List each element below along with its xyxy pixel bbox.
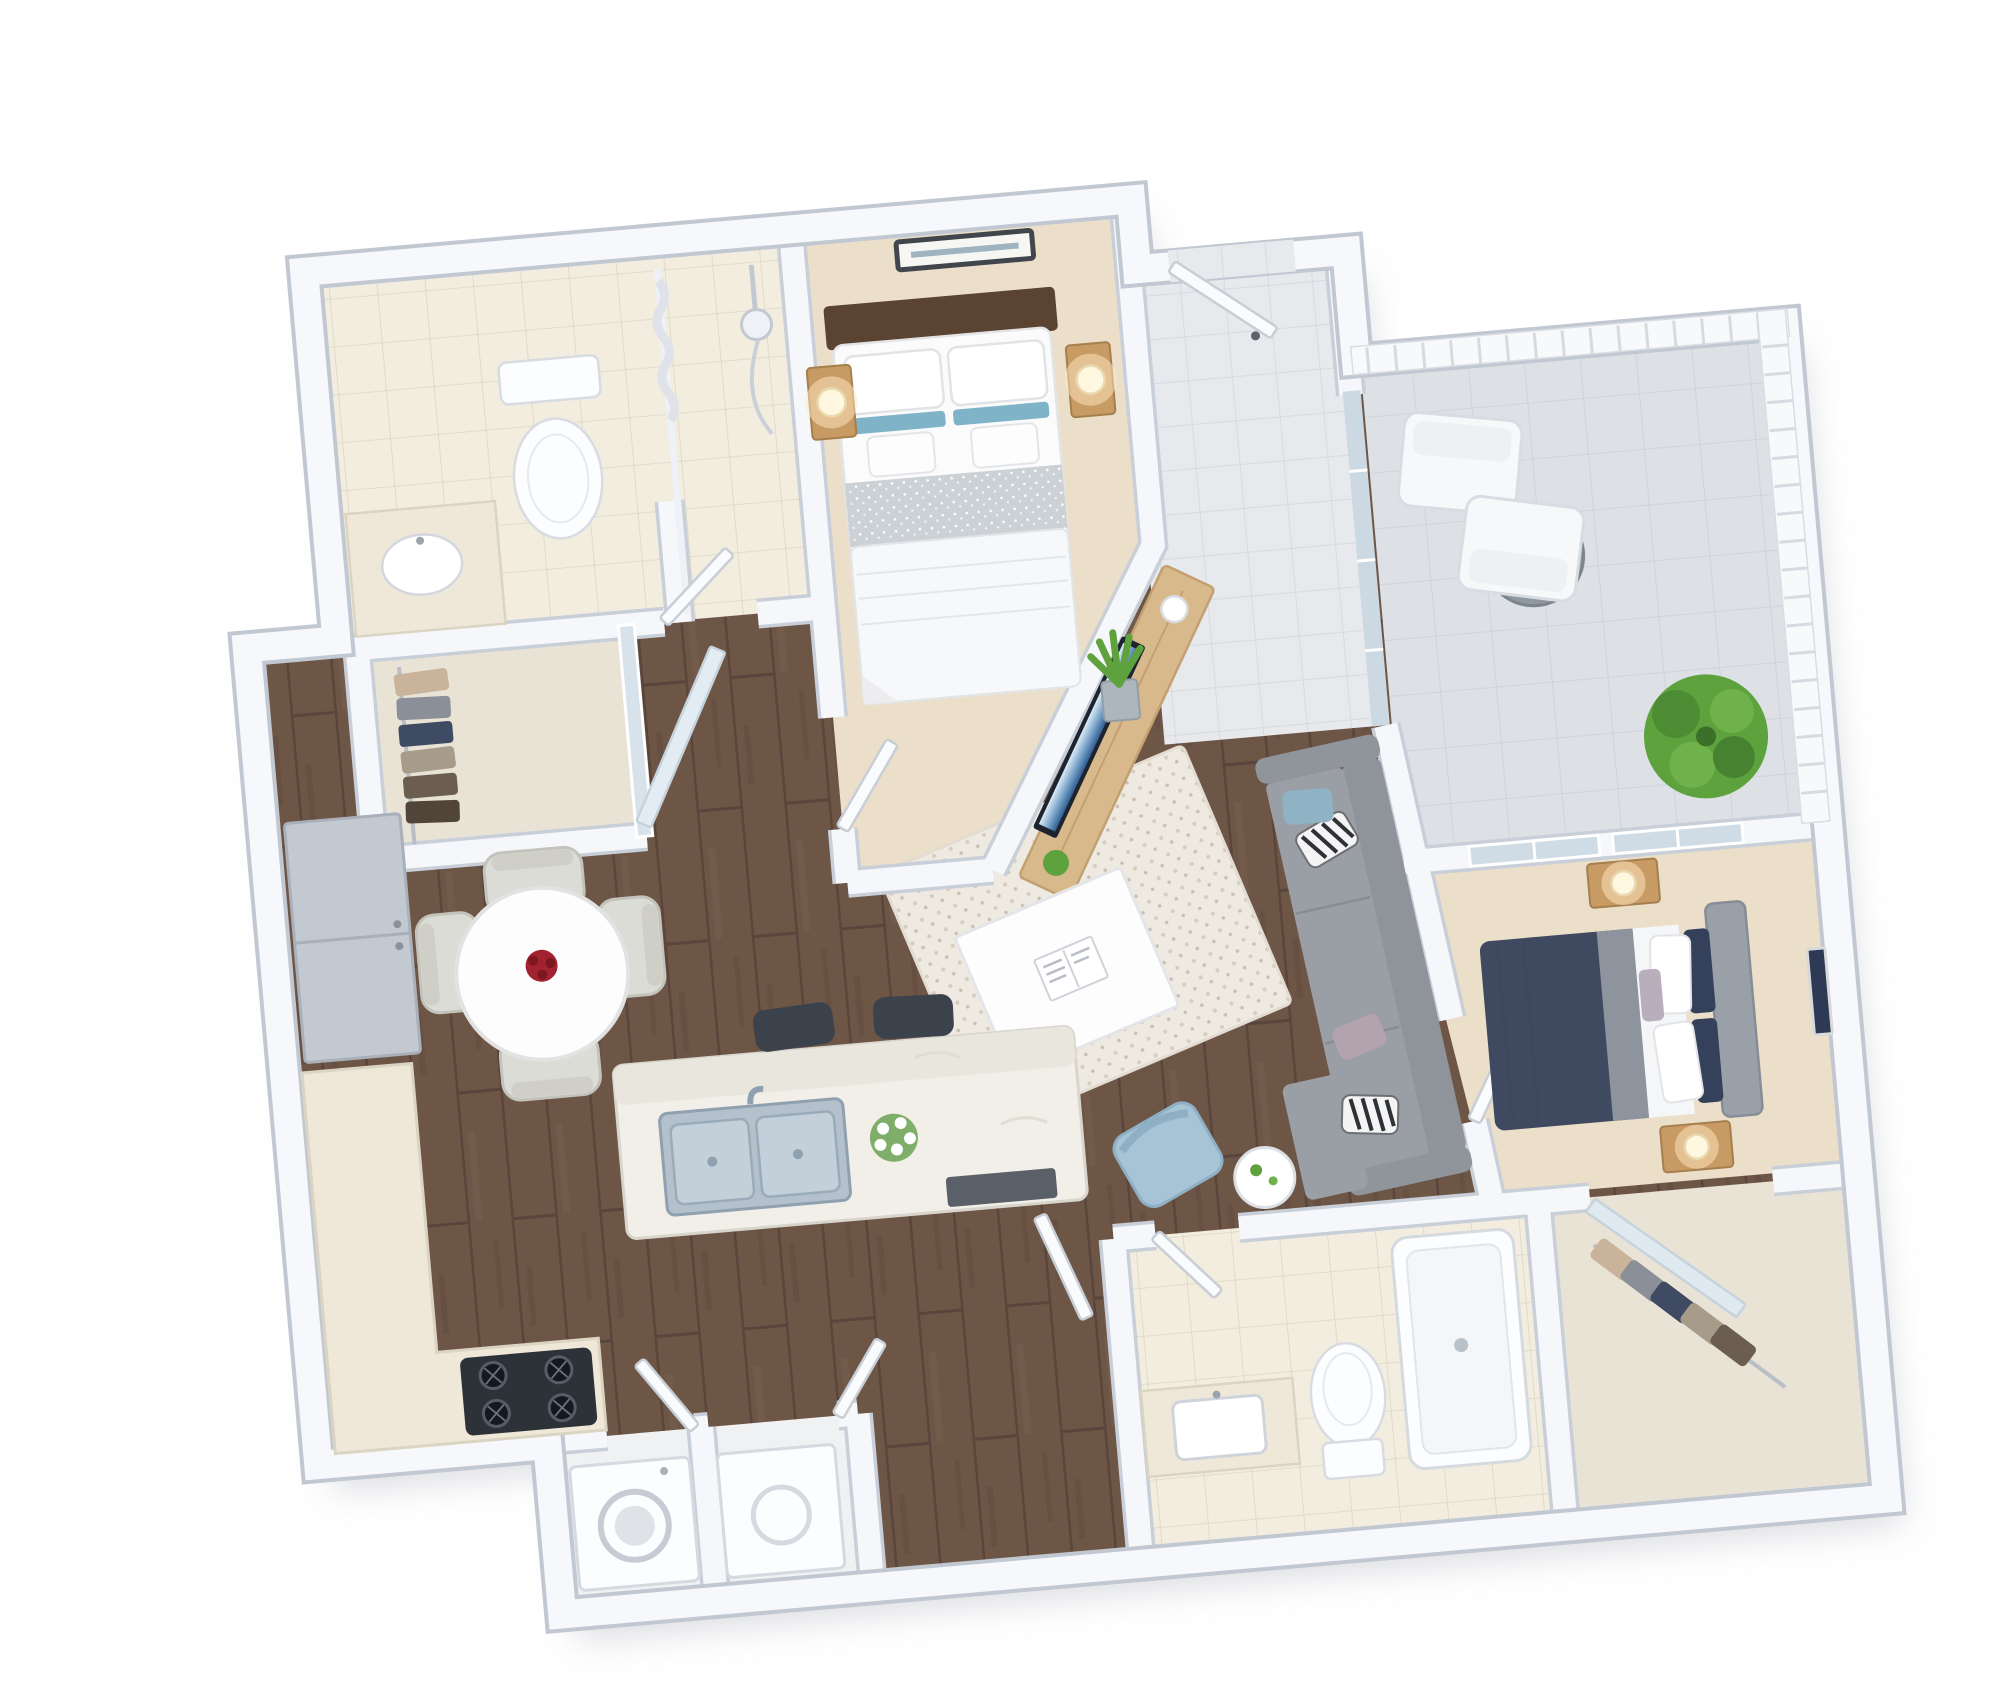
shower-head-icon (740, 308, 773, 341)
dryer (717, 1444, 845, 1578)
gas-cooktop (459, 1347, 597, 1436)
patterned-pillow (1638, 968, 1664, 1022)
table-lamp (1075, 365, 1105, 395)
apartment-plan (215, 143, 1892, 1634)
washer (569, 1457, 699, 1591)
bathroom-vanity (345, 501, 505, 637)
bathtub (1391, 1228, 1533, 1470)
blue-pillow (1282, 788, 1335, 826)
second-closet-floor (1546, 1175, 1872, 1512)
accent-pillow (867, 432, 936, 478)
lounge-chair (1457, 495, 1586, 603)
table-lamp (1684, 1134, 1710, 1160)
pillow (947, 340, 1048, 406)
pillow (844, 349, 945, 415)
toilet-tank (1322, 1438, 1385, 1479)
bathroom2-vanity (1141, 1378, 1300, 1477)
table-lamp (816, 387, 846, 417)
floor-plan-rendering (0, 0, 2000, 1700)
bar-stool (872, 993, 954, 1039)
vanity-sink (1172, 1395, 1267, 1461)
accent-pillow (970, 423, 1039, 469)
floor-plan-stage (0, 0, 2000, 1700)
zebra-pillow (1342, 1095, 1399, 1134)
master-bed (833, 327, 1082, 705)
table-lamp (1610, 870, 1636, 896)
